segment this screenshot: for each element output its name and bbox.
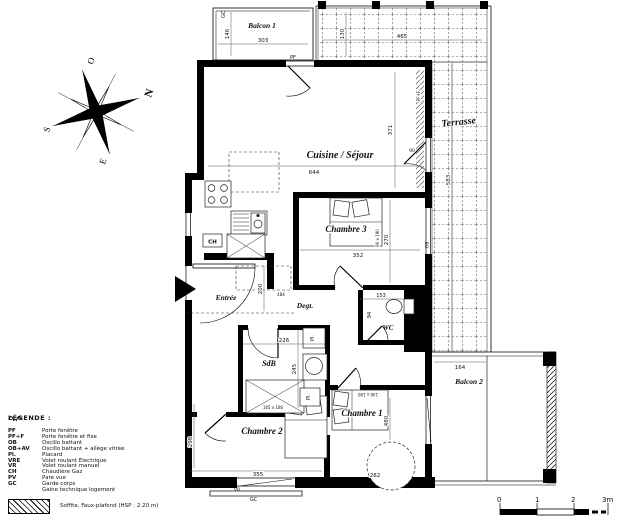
sdb-height-dim: 245 xyxy=(292,363,298,374)
compass-o: O xyxy=(85,56,97,66)
chambre-1-bed-dim: 140 x 190 xyxy=(357,392,378,397)
boiler-label: CH xyxy=(208,240,217,246)
balcon-2-label: Balcon 2 xyxy=(454,377,483,386)
terrasse-height-dim: 583 xyxy=(446,174,452,185)
chambre-1-height-dim: 480 xyxy=(384,415,390,426)
balcon-1-label: Balcon 1 xyxy=(247,21,276,30)
entree-height-dim: 200 xyxy=(258,283,264,294)
chambre-2-label: Chambre 2 xyxy=(241,426,283,436)
legend-title: LÉGENDE : xyxy=(8,414,198,422)
pff-label: PF+F xyxy=(416,90,421,101)
balcon-1-rail-label: GC xyxy=(221,10,227,18)
terrasse-area: Terrasse xyxy=(316,1,491,352)
placard-ch1-label: Pl. xyxy=(306,394,312,400)
toilet-tank xyxy=(404,299,414,314)
wc-label: WC xyxy=(383,324,394,332)
chambre-1-label: Chambre 1 xyxy=(341,408,382,418)
soffite-strip xyxy=(416,70,424,188)
balcon-1-width-dim: 303 xyxy=(258,38,269,44)
compass-n: N xyxy=(142,87,156,99)
balcon-2-area: Balcon 2 164 xyxy=(432,352,556,485)
chambre-3-width-dim: 352 xyxy=(353,253,364,259)
pillow xyxy=(352,200,369,217)
degt-label: Degt. xyxy=(296,301,314,310)
chambre-1-width-dim: 282 xyxy=(370,473,381,479)
balcon-1-area: Balcon 1 GC 303 146 xyxy=(213,8,313,60)
compass-e: E xyxy=(97,156,108,165)
entree-label: Entrée xyxy=(215,293,238,302)
placard-sdb-label: Pl. xyxy=(310,335,316,341)
terrasse-width-dim: 465 xyxy=(397,34,408,40)
balcon-1-height-dim: 146 xyxy=(225,28,231,39)
wc-width-dim: 153 xyxy=(376,293,386,299)
chambre-3-bed-dim: 90 x 190 xyxy=(375,229,380,247)
scale-3m: 3m xyxy=(602,496,613,504)
ob-label: OB xyxy=(425,242,431,249)
compass-s: S xyxy=(41,125,52,133)
sejour-width-dim: 644 xyxy=(309,170,320,176)
vr-label: VR xyxy=(234,487,240,493)
kitchen-fixtures xyxy=(203,181,267,258)
scale-bar: 0 1 2 3m xyxy=(497,496,613,515)
balcon-2-width-dim: 164 xyxy=(455,365,466,371)
legend-item-gtl: Gaine technique logement xyxy=(8,488,198,494)
pillow xyxy=(333,391,349,407)
sejour-height-dim: 371 xyxy=(388,125,394,136)
legend-soffite-row: Soffite, Faux-plafond (HSP : 2.20 m) xyxy=(8,499,198,514)
stove xyxy=(205,181,231,207)
wc-height-dim: 94 xyxy=(367,312,373,318)
compass-rose: N O S E xyxy=(40,56,157,168)
entrance-arrow xyxy=(175,276,196,302)
legend: LÉGENDE : PFPorte fenêtre PF+FPorte fenê… xyxy=(8,414,198,514)
round-table xyxy=(367,442,415,490)
chambre-3-height-dim: 270 xyxy=(384,234,390,245)
entree-width-dim: 484 xyxy=(277,292,285,297)
pf-label: PF xyxy=(290,55,296,61)
floor-plan-page: Terrasse Balcon 1 GC 303 146 xyxy=(0,0,621,525)
sdb-width-dim: 226 xyxy=(279,338,290,344)
sejour-door-dim: 90 xyxy=(409,148,415,154)
terrasse-depth-dim: 130 xyxy=(340,28,346,39)
scale-2: 2 xyxy=(571,496,575,504)
chambre-2-width-dim: 355 xyxy=(253,472,264,478)
scale-1: 1 xyxy=(535,496,539,504)
soffite-hatch-swatch xyxy=(8,499,50,514)
scale-0: 0 xyxy=(497,496,501,504)
toilet-bowl xyxy=(386,300,402,314)
washbasin xyxy=(306,358,323,375)
bath-size-dim: 165 x 180 xyxy=(263,405,284,410)
sdb-label: SdB xyxy=(262,359,276,368)
sejour-label: Cuisine / Séjour xyxy=(307,150,374,161)
chambre-3-label: Chambre 3 xyxy=(325,224,367,234)
pillow xyxy=(333,200,350,217)
gc-bottom-label: GC xyxy=(250,497,258,503)
